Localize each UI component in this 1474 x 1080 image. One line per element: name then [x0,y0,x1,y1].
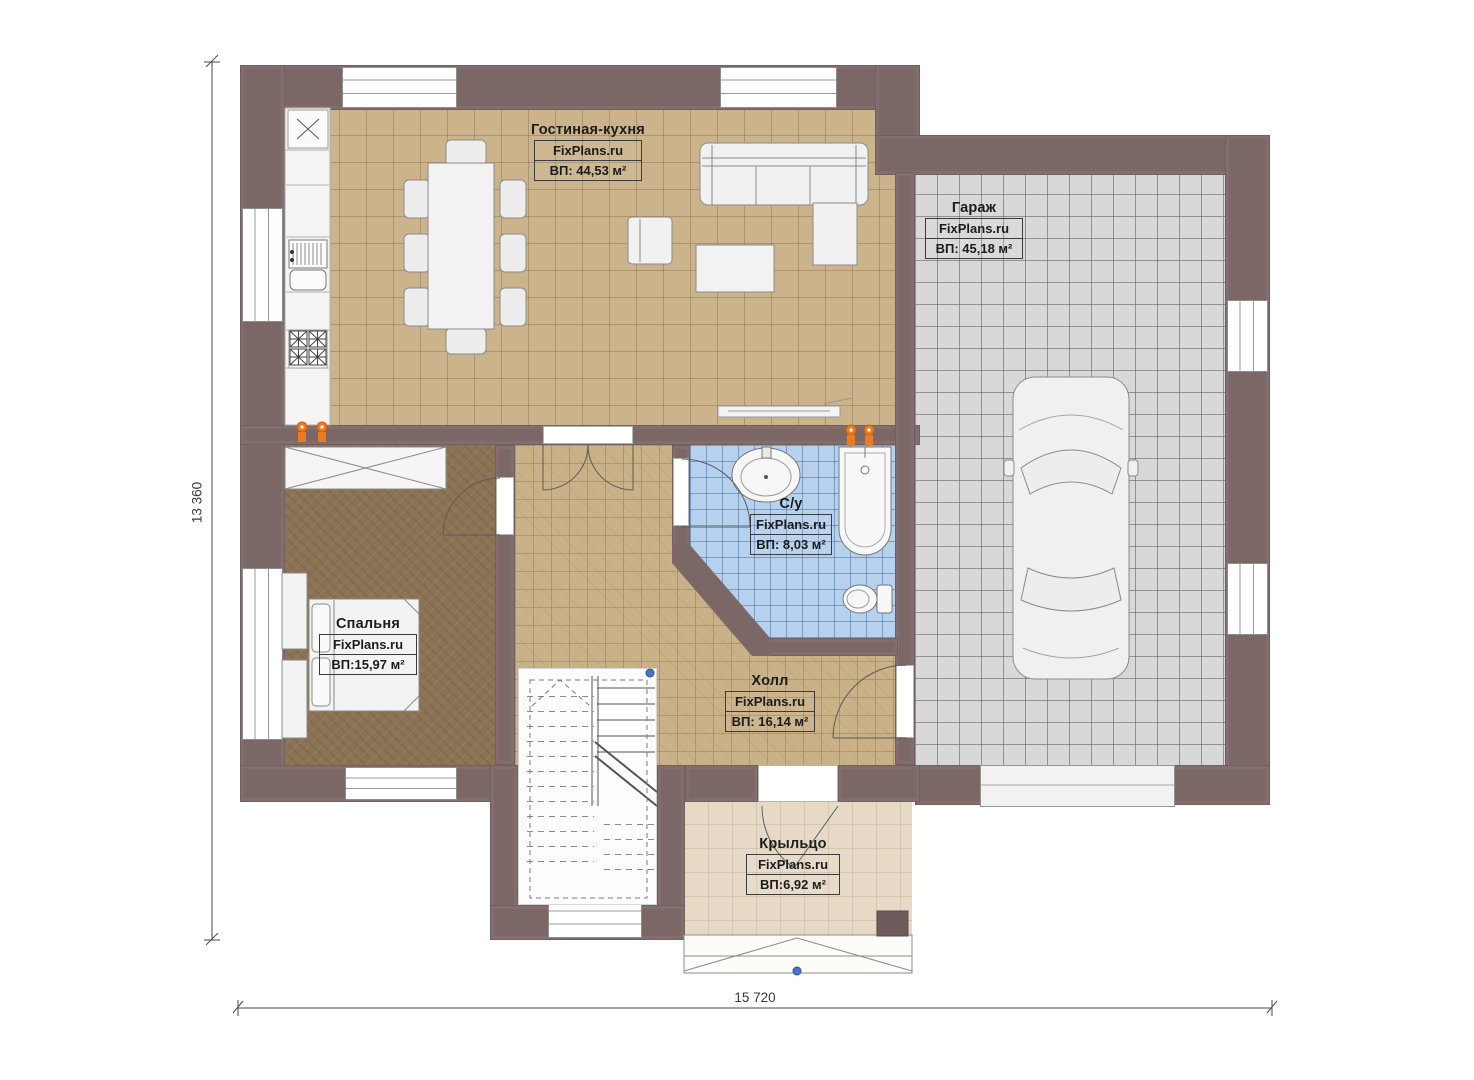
room-area: ВП: 44,53 м² [535,160,641,180]
room-label-living: Гостиная-кухня FixPlans.ru ВП: 44,53 м² [523,122,653,181]
dining-table-set [404,140,526,354]
room-label-hall: Холл FixPlans.ru ВП: 16,14 м² [722,673,818,732]
brand-watermark: FixPlans.ru [535,141,641,160]
staircase-detail [530,669,657,898]
room-name: Гараж [922,200,1026,216]
room-label-porch: Крыльцо FixPlans.ru ВП:6,92 м² [744,836,842,895]
wardrobe [285,447,446,489]
room-area: ВП:15,97 м² [320,654,416,674]
heating-valves-bath [846,425,874,445]
room-name: Крыльцо [744,836,842,852]
door-arcs [443,445,906,868]
porch-steps [684,935,912,975]
room-area: ВП: 45,18 м² [926,238,1022,258]
armchair [628,217,672,264]
fridge-icon [288,110,328,148]
car [1004,377,1138,679]
bathtub [839,447,891,555]
brand-watermark: FixPlans.ru [320,635,416,654]
porch-column [877,911,908,936]
stove [289,330,327,368]
room-name: Холл [722,673,818,689]
coffee-table [696,245,774,292]
wash-basin [732,447,800,502]
room-label-bedroom: Спальня FixPlans.ru ВП:15,97 м² [316,616,420,675]
brand-watermark: FixPlans.ru [747,855,839,874]
room-label-bathroom: С/у FixPlans.ru ВП: 8,03 м² [748,496,834,555]
dimension-height: 13 360 [190,478,205,528]
brand-watermark: FixPlans.ru [926,219,1022,238]
tv-shelf [718,398,852,417]
fixtures-overlay [0,0,1474,1080]
room-area: ВП: 8,03 м² [751,534,831,554]
room-name: Гостиная-кухня [523,122,653,138]
room-name: С/у [748,496,834,512]
wall-bath-diagonal [672,545,770,656]
room-area: ВП:6,92 м² [747,874,839,894]
kitchen-sink [289,240,327,290]
room-label-garage: Гараж FixPlans.ru ВП: 45,18 м² [922,200,1026,259]
floor-plan-canvas: Гостиная-кухня FixPlans.ru ВП: 44,53 м² … [0,0,1474,1080]
room-area: ВП: 16,14 м² [726,711,814,731]
dimension-width: 15 720 [715,990,795,1005]
brand-watermark: FixPlans.ru [726,692,814,711]
brand-watermark: FixPlans.ru [751,515,831,534]
room-name: Спальня [316,616,420,632]
toilet [843,585,892,613]
